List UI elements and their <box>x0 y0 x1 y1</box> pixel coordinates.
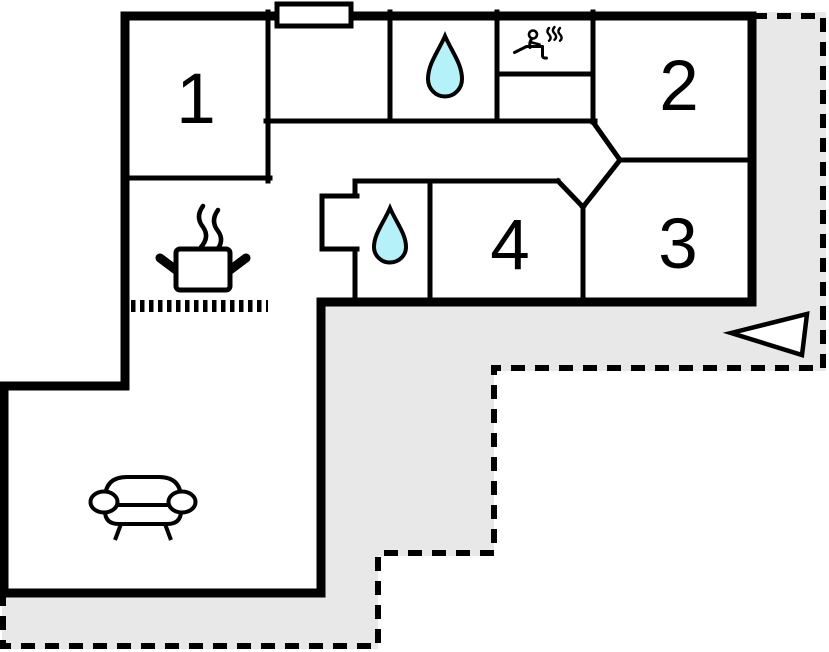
room-2-label: 2 <box>659 47 699 126</box>
window-marker <box>277 4 351 26</box>
room-4-label: 4 <box>490 206 530 285</box>
floor-plan-drawing: 1 2 3 4 <box>0 0 829 652</box>
room-3-label: 3 <box>658 205 698 284</box>
floor-plan: 1 2 3 4 <box>0 0 829 652</box>
room-1-label: 1 <box>176 60 216 139</box>
